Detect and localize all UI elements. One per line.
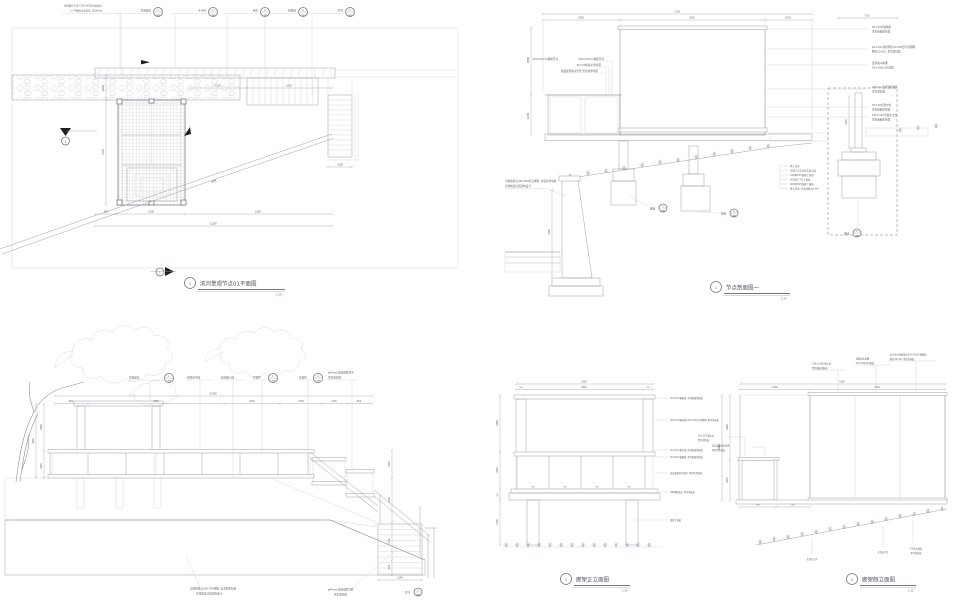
callout-bubble: 木平台 2 详图 xyxy=(198,8,217,17)
elev-pergola xyxy=(74,401,163,451)
callout-label: 栏杆 xyxy=(405,591,411,595)
note-label: 黑色烤漆饰面 xyxy=(712,448,726,452)
note-label: 50×50方钢横梁, 黑色氟碳漆饰面 xyxy=(670,455,704,459)
drawing-scale: 1:50 xyxy=(276,294,282,297)
section-bench xyxy=(545,95,622,135)
note-label: 混凝土基础 xyxy=(670,518,682,522)
section-wire-screen xyxy=(620,28,765,135)
dim-label: 1800 xyxy=(578,17,585,20)
layer-label: 200厚C25混凝土基础 xyxy=(790,182,814,186)
section-cut-marker-2: 1 xyxy=(150,267,176,276)
note-label: 25×50@150饰面 xyxy=(856,361,875,365)
note-label: 网孔50×50, 黑色漆饰面 xyxy=(890,357,915,361)
dim-label: 3500 xyxy=(689,17,696,20)
layer-label: 素土夯实 xyxy=(790,164,800,168)
note-label: 50×50方钢次梁, 黑色氟碳漆饰面 xyxy=(670,448,704,452)
dim-label: 3230 xyxy=(286,85,293,88)
callout-label: 景观廊架 xyxy=(141,9,152,13)
front-pier-left xyxy=(527,500,539,545)
leader-label: 黑色漆饰面 xyxy=(328,376,341,380)
dim-label: 700 xyxy=(531,487,535,489)
plan-steps xyxy=(247,78,318,105)
side-bottom-notes: 文化石汀步 文化石汀步 2%排水坡度 黑色漆饰面 xyxy=(807,520,923,561)
side-base-band xyxy=(736,500,947,504)
front-grass xyxy=(504,542,652,547)
plan-stone-paving-hatch xyxy=(12,75,240,100)
elev-fence-step2 xyxy=(312,458,346,486)
plan-note-leader xyxy=(62,13,121,75)
front-base xyxy=(509,493,660,500)
leader-label: 景墙柱 xyxy=(299,376,307,380)
dim-label: 1250 xyxy=(331,400,337,403)
dim-label: 250 xyxy=(519,387,523,389)
section-screen-bottom-rail xyxy=(618,128,767,132)
note-label: 菠萝格木格栅 xyxy=(856,357,870,361)
side-elevation-drawing: 5300 1800 3500 1800 1050 2850 950 900 12… xyxy=(698,353,947,593)
drawing-number: 1 xyxy=(715,286,717,290)
note-label: 网孔50×50, 黑色漆饰面 xyxy=(872,50,901,54)
section-retaining-wall: 2100 xyxy=(548,176,603,296)
callout-label: 基础 xyxy=(844,232,850,236)
note-label: 2%排水坡度 xyxy=(910,547,923,551)
section-callout-3: 基础 2 详图 xyxy=(844,200,861,237)
drawing-sheet: 坡道 1 1 台阶踏步100×350×40花岗岩面层 1:2干硬性水泥砂浆, 厚… xyxy=(0,0,960,602)
dim-label: 700 xyxy=(563,487,567,489)
dim-label: 600 xyxy=(388,564,391,569)
note-label: 50×50方钢横梁, 黑色氟碳漆饰面 xyxy=(670,396,704,400)
note-label: φ2.0mm钢丝网片50×50目不锈钢网 xyxy=(872,45,915,49)
plan-note-line2: 1:2干硬性水泥砂浆, 厚30mm xyxy=(70,9,103,13)
note-label: 具体做法详见结构设计 xyxy=(196,592,222,596)
front-mesh-band xyxy=(516,456,653,489)
drawing-number: 1 xyxy=(565,578,567,582)
layer-label: 素土夯实, 压实系数≥0.94 xyxy=(790,187,818,191)
front-posts xyxy=(517,456,645,489)
leader-label: 景墙柱 xyxy=(253,376,261,380)
dim-label: 1800 xyxy=(772,386,778,389)
front-elevation-drawing: 3300 250 2800 250 1800 1050 300 1350 700… xyxy=(496,381,719,593)
drawing-title: 廊架侧立面图 xyxy=(862,576,896,584)
note-label: 30×50防腐木条饰面 xyxy=(577,63,602,67)
note-label: 3厚钢板收边, 黑色漆饰面 xyxy=(670,490,695,494)
drawing-title: 滨河景观节点01平面图 xyxy=(200,280,257,288)
dim-label: 1800 xyxy=(40,424,43,430)
drawing-scale: 1:20 xyxy=(781,298,787,301)
side-panel-post-right xyxy=(774,460,777,500)
drawing-scale: 1:30 xyxy=(622,590,628,593)
dim-label: 1700 xyxy=(388,497,391,503)
note-label: 当地龟纹石200-300砌筑, 水泥砂浆勾缝 xyxy=(190,587,237,591)
plan-stair xyxy=(328,95,352,157)
dim-label: 1050 xyxy=(726,477,729,483)
wall-note-line1: 当地龟纹石200-300毛石砌筑, 水泥砂浆勾缝 xyxy=(505,179,557,183)
front-mid-rail xyxy=(514,452,655,456)
note-label: φ40mm镀锌钢管立柱 xyxy=(328,588,354,592)
note-label: 50×50方钢横梁 xyxy=(872,25,892,29)
dim-label: 2150 xyxy=(215,85,222,88)
dim-label: 1050 xyxy=(785,17,792,20)
wall-note-leader xyxy=(505,189,566,197)
dim-label: 2600 xyxy=(249,400,255,403)
side-screen-top-rail xyxy=(808,393,947,396)
drawing-scale: 1:30 xyxy=(908,590,914,593)
dim-label: 1050 xyxy=(496,467,499,473)
note-label: 黑色氟碳漆饰面 xyxy=(872,118,891,122)
cad-sheet-svg: 坡道 1 1 台阶踏步100×350×40花岗岩面层 1:2干硬性水泥砂浆, 厚… xyxy=(0,0,960,602)
callout-label: 种植池 xyxy=(288,9,296,13)
section-base-layers: 素土夯实 30厚1:3水泥砂浆结合层 100厚C15混凝土垫层 300厚3:7灰… xyxy=(780,164,818,191)
plan-step-treads xyxy=(253,78,313,105)
dim-label: 1800 xyxy=(496,420,499,426)
side-title-block: 2 廊架侧立面图 1:30 xyxy=(847,574,917,593)
plan-path-extension xyxy=(335,70,456,77)
note-label: 成品菠萝格木坐凳 xyxy=(712,444,730,448)
plan-grass-field xyxy=(12,28,458,268)
front-title-block: 1 廊架正立面图 1:30 xyxy=(561,574,631,593)
drawing-title: 节点剖面图一 xyxy=(726,284,760,292)
section-pier-2 xyxy=(681,146,710,211)
note-label: 黑色氟碳漆饰面 xyxy=(872,30,891,34)
drawing-number: 1 xyxy=(189,282,191,286)
note-label: φ2.0mm钢丝网片50×50目不锈钢网, 黑色漆饰面 xyxy=(670,418,719,422)
note-label: 文化石汀步 xyxy=(807,557,819,561)
section-drawing: 7100 1800 3500 1050 750 2000 1200 120×50… xyxy=(505,11,939,301)
dim-total-label: 7100 xyxy=(674,11,681,14)
dim-label: 850 xyxy=(357,400,362,403)
note-label: 120×50mm横梁压顶 xyxy=(578,57,604,61)
front-right-notes: 50×50方钢横梁, 黑色氟碳漆饰面 φ2.0mm钢丝网片50×50目不锈钢网,… xyxy=(633,396,719,522)
callout-label: 基础 xyxy=(721,212,727,216)
layer-label: 300厚3:7灰土垫层 xyxy=(790,178,811,182)
elev-wall-top-edge xyxy=(5,520,425,560)
dim-label: 250 xyxy=(646,387,650,389)
dim-label: 700 xyxy=(595,487,599,489)
wall-note-line2: 具体做法详见结构设计 xyxy=(505,184,531,188)
callout-label: 台阶 xyxy=(253,9,259,13)
note-label: φ50mm镀锌钢管横梁 xyxy=(872,85,898,89)
side-top-notes: 120×120方钢立柱 黑色氟碳漆饰面 菠萝格木格栅 25×50@150饰面 φ… xyxy=(810,353,936,393)
dim-label: 950 xyxy=(756,505,760,507)
elev-leaders: 景观廊架 1 详图 参照地平线 绿化覆土线 景墙柱 1 详图 景墙柱 2 详图 … xyxy=(128,371,358,479)
front-left-column xyxy=(516,399,526,455)
leader-label: 绿化覆土线 xyxy=(221,376,234,380)
elev-fence-step3 xyxy=(346,470,374,498)
note-label: 黑色氟碳漆饰面 xyxy=(872,108,891,112)
dim-label: 1200 xyxy=(527,112,530,119)
dim-total-label: 12280 xyxy=(209,393,217,396)
drawing-number: 2 xyxy=(851,578,853,582)
dim-label: 900 xyxy=(791,505,795,507)
callout-bubble: 栏杆 5 详图 xyxy=(338,8,355,17)
leader-label: 景观廊架 xyxy=(129,376,140,380)
dim-label: 3500 xyxy=(874,386,880,389)
dim-label: 880 xyxy=(104,211,109,214)
layer-label: 30厚1:3水泥砂浆结合层 xyxy=(790,169,817,173)
dim-label: 2000 xyxy=(527,56,530,63)
note-label: 成品菠萝格木坐凳, 黑色烤漆饰面 xyxy=(670,471,703,475)
dim-label: 1050 xyxy=(40,463,43,469)
front-bottom-rail xyxy=(511,489,658,493)
leader-label: φ40mm镀锌钢管扶手 xyxy=(328,371,354,375)
dim-label: 300 xyxy=(497,492,499,496)
dim-label: 700 xyxy=(627,487,631,489)
dim-label: 1500 xyxy=(298,400,304,403)
note-label: 黑色漆饰面 xyxy=(698,438,710,442)
side-grass xyxy=(758,506,945,544)
dim-label: 1080 xyxy=(337,163,344,166)
plan-note-line1: 台阶踏步100×350×40花岗岩面层 xyxy=(64,4,102,8)
callout-bubble: 景观廊架 1 详图 xyxy=(141,8,163,17)
dim-label: 2100 xyxy=(548,229,551,235)
dim-label: 750 xyxy=(865,15,870,18)
note-label: 黑色漆饰面 xyxy=(872,90,885,94)
plan-drawing: 坡道 1 1 台阶踏步100×350×40花岗岩面层 1:2干硬性水泥砂浆, 厚… xyxy=(0,4,458,297)
dim-total-label: 12280 xyxy=(209,223,217,226)
front-top-beam xyxy=(514,395,655,399)
front-right-column xyxy=(643,399,653,455)
plan-title-block: 1 滨河景观节点01平面图 1:50 xyxy=(185,278,286,297)
dim-total-label: 3300 xyxy=(581,381,587,384)
note-label: 菠萝格木格栅 xyxy=(872,61,888,65)
elev-stone-wall xyxy=(5,520,425,575)
note-label: 50×50方钢立柱 xyxy=(872,103,892,107)
elev-dimensions: 12280 880 5200 2600 1500 1250 850 1800 1… xyxy=(32,393,423,582)
layer-label: 100厚C15混凝土垫层 xyxy=(790,173,814,177)
side-wire-screen xyxy=(810,395,945,500)
dim-total-label: 5300 xyxy=(839,381,845,384)
note-label: 120×120方钢立柱 xyxy=(812,362,832,366)
note-label: 25×50@150饰面 xyxy=(872,66,894,70)
callout-label: 栏杆 xyxy=(338,9,344,13)
dim-label: 2850 xyxy=(32,438,35,444)
note-label: 120×120方钢主立柱 xyxy=(872,113,897,117)
elevation-drawing: 12280 880 5200 2600 1500 1250 850 1800 1… xyxy=(5,326,437,597)
dim-label: 8100 xyxy=(255,211,262,214)
side-screen-mullions xyxy=(855,395,900,500)
section-grade-line xyxy=(558,143,812,180)
dim-label: 1050 xyxy=(388,461,391,467)
dim-label: 1650 xyxy=(845,119,848,125)
plan-stair-rail xyxy=(328,78,358,160)
note-label: 黑色漆饰面 xyxy=(911,551,923,555)
side-bench-rail xyxy=(738,458,779,461)
elev-soil-band xyxy=(5,478,376,527)
dim-label: 5200 xyxy=(153,400,159,403)
side-dimensions: 5300 1800 3500 1800 1050 2850 950 900 xyxy=(718,381,946,509)
flow-arrow-icon xyxy=(141,60,150,64)
elev-fence xyxy=(48,450,314,479)
note-label: 文化石汀步 xyxy=(878,550,890,554)
section-callout-1: 基础 1 详图 xyxy=(628,196,667,212)
dim-label: 2800 xyxy=(581,386,587,389)
dim-label: 1080 xyxy=(397,577,403,580)
section-path-layers xyxy=(505,252,560,272)
section-screen-top-rail xyxy=(618,26,767,30)
side-left-notes: 50×50方钢立柱 黑色漆饰面 成品菠萝格木坐凳 黑色烤漆饰面 xyxy=(698,434,765,458)
dim-label: 880 xyxy=(69,400,74,403)
side-grade-line xyxy=(756,509,947,545)
dim-label: 1800 xyxy=(726,424,729,430)
callout-bubble: 台阶 3 详图 xyxy=(253,8,270,17)
callout-label: 基础 xyxy=(650,207,656,211)
elev-bottom-notes: 当地龟纹石200-300砌筑, 水泥砂浆勾缝 具体做法详见结构设计 φ40mm镀… xyxy=(186,548,422,597)
note-label: 120×50mm横梁压顶 xyxy=(532,57,558,61)
side-panel-post-left xyxy=(739,460,742,500)
note-label: 黑色漆饰面 xyxy=(334,593,347,597)
section-pier-1 xyxy=(611,141,636,205)
note-label: 50×50方钢立柱 xyxy=(698,434,715,438)
side-mesh-panel xyxy=(740,461,776,501)
dim-label: 1350 xyxy=(496,519,499,525)
dim-label: 1450 xyxy=(388,538,391,544)
drawing-title: 廊架正立面图 xyxy=(576,576,610,584)
dim-label: 5250 xyxy=(102,148,105,155)
note-label: φ2.0mm钢丝网片50×50目不锈钢网 xyxy=(890,353,926,357)
section-title-block: 1 节点剖面图一 1:20 xyxy=(711,282,791,301)
front-opening xyxy=(526,399,643,452)
front-dimensions: 3300 250 2800 250 1800 1050 300 1350 700… xyxy=(496,381,654,547)
section-callout-2: 基础 1 详图 xyxy=(698,209,738,217)
elev-footing-stems xyxy=(77,478,161,508)
elev-stair xyxy=(374,490,437,578)
note-label: 黑色氟碳漆饰面 xyxy=(812,366,828,370)
callout-label: 木平台 xyxy=(198,9,206,13)
section-cut-marker-1: 1 xyxy=(60,128,97,145)
dim-label: 1050 xyxy=(102,84,105,91)
callout-bubble: 种植池 4 详图 xyxy=(288,8,307,17)
note-label: 成品菠萝格木坐凳 黑色烤漆饰面 xyxy=(561,69,599,73)
dim-label: 3300 xyxy=(148,211,155,214)
plan-stair-treads xyxy=(328,100,352,150)
section-right-notes: 50×50方钢横梁 黑色氟碳漆饰面 φ2.0mm钢丝网片50×50目不锈钢网 网… xyxy=(767,25,915,122)
leader-label: 参照地平线 xyxy=(187,376,200,380)
front-pier-right xyxy=(626,500,638,545)
